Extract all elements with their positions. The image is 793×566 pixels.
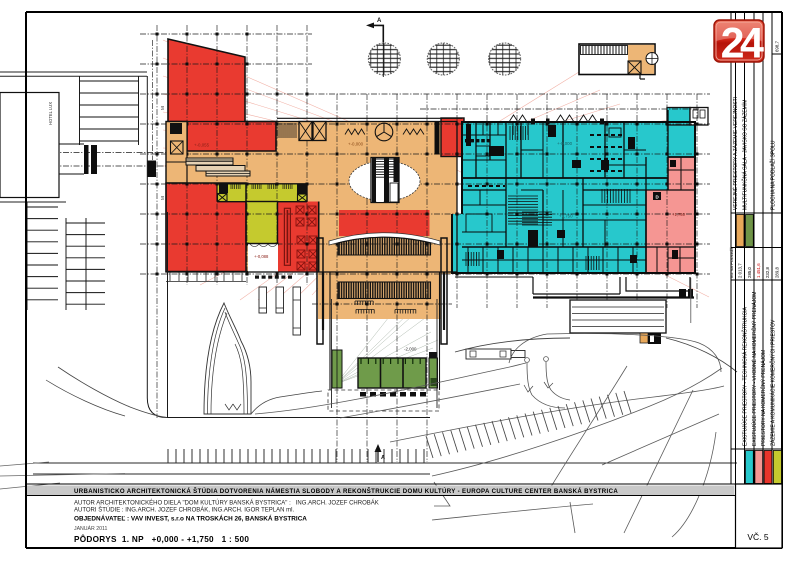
svg-text:AUTOR ARCHITEKTONICKÉHO DIELA: AUTOR ARCHITEKTONICKÉHO DIELA "DOM KULTÚ…	[74, 500, 379, 507]
svg-text:-2,000: -2,000	[404, 347, 417, 352]
svg-text:EXISTUJÚCE PRIESTORY - VHODNÉ: EXISTUJÚCE PRIESTORY - VHODNÉ NA KOMERČN…	[751, 292, 758, 446]
svg-text:ZÁZEMIE A KOMUNIKÁCIE KOMERČNÝ: ZÁZEMIE A KOMUNIKÁCIE KOMERČNÝCH PRIESTO…	[769, 319, 776, 446]
svg-text:+-0,000: +-0,000	[557, 141, 573, 146]
svg-text:VČ. 5: VČ. 5	[747, 532, 769, 542]
svg-text:MULTIFUNKČNÁ SÁLA - JAVISKO SO: MULTIFUNKČNÁ SÁLA - JAVISKO SO ZÁZEMÍM	[742, 100, 749, 210]
svg-text:24: 24	[721, 20, 764, 68]
svg-text:M: M	[160, 196, 165, 200]
svg-text:285,0: 285,0	[747, 266, 752, 278]
svg-text:VEREJNÉ PRIESTORY A ZÁZEMIE VE: VEREJNÉ PRIESTORY A ZÁZEMIE VEREJNOSTI	[732, 97, 739, 210]
svg-text:A: A	[377, 18, 382, 24]
svg-text:URBANISTICKO ARCHITEKTONICKÁ Š: URBANISTICKO ARCHITEKTONICKÁ ŠTÚDIA DOTV…	[74, 487, 618, 495]
svg-text:1 451,6: 1 451,6	[756, 263, 761, 278]
svg-text:PLOCHA NA PODLAŽÍ SPOLU: PLOCHA NA PODLAŽÍ SPOLU	[768, 140, 776, 210]
svg-text:698,7: 698,7	[774, 40, 779, 52]
svg-text:232,8: 232,8	[765, 266, 770, 278]
svg-text:PRIESTORY NA KOMERČNÝ PRENÁJOM: PRIESTORY NA KOMERČNÝ PRENÁJOM	[760, 350, 767, 446]
svg-text:289,8: 289,8	[774, 266, 779, 278]
svg-text:EXISTUJÚCE PRIESTORY - TECHNIC: EXISTUJÚCE PRIESTORY - TECHNICKÁ REKONŠT…	[742, 307, 749, 446]
svg-text:+1,750: +1,750	[672, 212, 686, 217]
svg-text:2 013,7: 2 013,7	[738, 263, 743, 278]
svg-text:HOTEL LUX: HOTEL LUX	[48, 102, 53, 125]
svg-text:JANUÁR 2011: JANUÁR 2011	[74, 525, 107, 532]
svg-text:AUTORI ŠTÚDIE : ING.ARCH. JOZE: AUTORI ŠTÚDIE : ING.ARCH. JOZEF CHROBÁK,…	[74, 507, 294, 514]
svg-text:OBJEDNÁVATEĽ : VAV INVEST, s.r: OBJEDNÁVATEĽ : VAV INVEST, s.r.o NA TROS…	[74, 514, 307, 523]
svg-text:+-0,088: +-0,088	[254, 254, 269, 259]
svg-text:M: M	[160, 106, 165, 110]
svg-text:+-0,055: +-0,055	[194, 143, 210, 148]
svg-text:+-0,000: +-0,000	[348, 142, 364, 147]
svg-text:m2 NA PODLAŽÍ: m2 NA PODLAŽÍ	[729, 247, 734, 278]
svg-text:PÔDORYS 1. NP +0,000 - +1,7: PÔDORYS 1. NP +0,000 - +1,750 1 : 500	[74, 533, 249, 544]
svg-text:+1,750: +1,750	[559, 214, 573, 219]
